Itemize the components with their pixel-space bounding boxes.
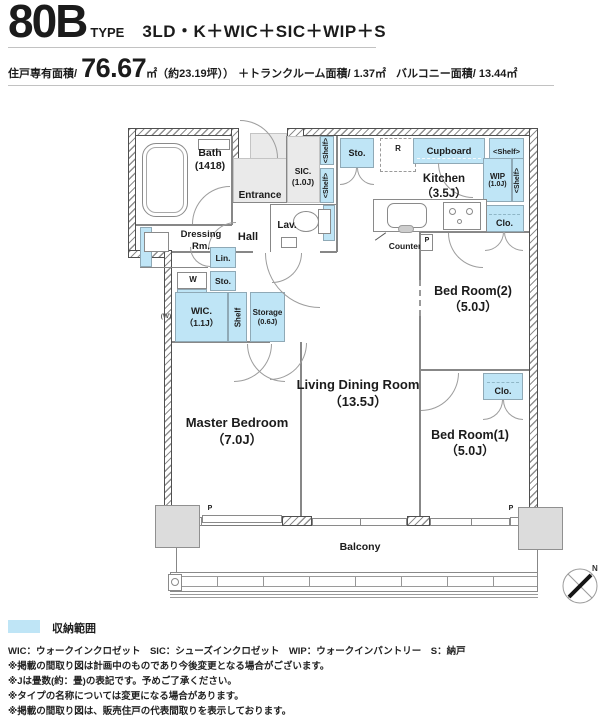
washer-label: W xyxy=(189,275,197,285)
wic-size: （1.1J） xyxy=(185,317,219,329)
bed1-window xyxy=(430,518,510,526)
stove-burner-icon xyxy=(449,208,456,215)
master-window xyxy=(202,515,282,523)
wic-shelf-strip: Shelf xyxy=(228,292,247,342)
sic-shelf-strip-2: <Shelf> xyxy=(320,168,334,203)
stove xyxy=(443,202,481,230)
bed1-closet: Clo. xyxy=(483,373,523,400)
lav-sink xyxy=(281,237,297,248)
stove-burner-icon xyxy=(457,219,462,224)
kitchen-sto-door-arc-right xyxy=(357,168,374,185)
room-label-entrance: Entrance xyxy=(239,190,282,203)
storage-room-label: Storage xyxy=(253,308,283,317)
cupboard: Cupboard xyxy=(413,138,485,164)
floor-plan-page: 80B TYPE 3LD・K＋WIC＋SIC＋WIP＋S 住戸専有面積/ 76.… xyxy=(0,0,607,720)
wall-bed2-bed1 xyxy=(419,369,529,371)
wall-master-ldr xyxy=(300,342,302,518)
room-label-living: Living Dining Room （13.5J） xyxy=(297,377,420,410)
wall-hall-bottom-right xyxy=(320,251,337,253)
legend-storage-swatch xyxy=(8,620,40,633)
wall-right xyxy=(529,128,538,508)
storage-label: Sto. xyxy=(215,276,231,286)
footer-note-3: ※タイプの名称については変更になる場合があります。 xyxy=(8,690,244,705)
room-label-sic: SIC. (1.0J) xyxy=(292,166,314,188)
dressing-vanity xyxy=(144,232,169,252)
bed1-door-arc xyxy=(421,373,459,411)
closet-label: Clo. xyxy=(496,218,513,228)
wall-hall-lav xyxy=(270,204,271,252)
wall-entrance-sic xyxy=(286,136,287,203)
hall-storage: Sto. xyxy=(210,271,236,291)
wall-corridor xyxy=(336,136,338,252)
bathtub xyxy=(142,143,188,217)
shelf-label: <Shelf> xyxy=(324,138,331,163)
refrigerator-label: R xyxy=(381,144,415,153)
washer-paren-label: (W) xyxy=(161,313,171,321)
wic-label: WIC. xyxy=(191,306,212,317)
balcony-side-right xyxy=(537,550,538,573)
bed2-door-arc xyxy=(448,233,483,268)
cupboard-label: Cupboard xyxy=(427,146,472,157)
kitchen-clo-door-arc-right xyxy=(504,232,523,251)
living-window xyxy=(312,518,407,526)
wip-label: WIP xyxy=(490,172,505,181)
wall-left-lower xyxy=(164,250,172,508)
bath-door-arc xyxy=(192,186,230,224)
footer-note-2: ※Jは畳数(約：畳)の表記です。予めご了承ください。 xyxy=(8,675,237,690)
walk-in-pantry: WIP (1.0J) xyxy=(483,158,512,202)
floor-plan: <Shelf> <Shelf> Sto. R Cupboard <Shelf> … xyxy=(0,0,607,620)
room-label-dressing: Dressing Rm. xyxy=(181,229,222,253)
balcony-side-left xyxy=(176,548,177,573)
wip-shelf-strip: <Shelf> xyxy=(512,158,524,202)
room-label-bath: Bath (1418) xyxy=(195,147,225,174)
north-label: N xyxy=(592,564,598,573)
bed1-clo-door-arc-right xyxy=(503,400,523,420)
linen-label: Lin. xyxy=(215,253,230,263)
sic-shelf-strip-1: <Shelf> xyxy=(320,136,334,165)
footer-note-4: ※掲載の間取り図は、販売住戸の代表間取りを表示しております。 xyxy=(8,705,291,720)
wall-ldr-bed2-b xyxy=(419,316,421,370)
toilet-bowl xyxy=(293,211,319,232)
wall-top-left xyxy=(128,128,238,136)
washer-space: W xyxy=(177,272,207,289)
bed1-clo-door-arc-left xyxy=(483,400,503,420)
footer-note-1: ※掲載の間取り図は計画中のものであり今後変更となる場合がございます。 xyxy=(8,660,329,675)
footer-abbreviations: WIC：ウォークインクロゼット SIC：シューズインクロゼット WIP：ウォーク… xyxy=(8,645,466,660)
kitchen-clo-door-arc-left xyxy=(485,232,504,251)
entrance-door-arc xyxy=(240,120,278,158)
wall-bath-entrance xyxy=(231,136,233,225)
window-pier-2 xyxy=(407,516,430,526)
storage-room-size: (0.6J) xyxy=(258,317,278,326)
room-label-bed2: Bed Room(2) （5.0J） xyxy=(434,283,512,315)
kitchen-closet: Clo. xyxy=(485,205,524,232)
wall-ldr-bed2-dashed xyxy=(419,280,421,316)
legend-label: 収納範囲 xyxy=(52,620,96,636)
pipe-label-bottom-left: P xyxy=(208,505,213,514)
wall-left-upper xyxy=(128,128,136,258)
counter-label: Counter xyxy=(389,241,422,252)
kitchen-storage: Sto. xyxy=(340,138,374,168)
pillar-left xyxy=(155,505,200,548)
balcony-railing xyxy=(170,572,538,592)
room-label-bed1: Bed Room(1) （5.0J） xyxy=(431,427,509,459)
wall-dressing-bottom xyxy=(140,267,208,268)
window-pier-1 xyxy=(282,516,312,526)
shelf-label: <Shelf> xyxy=(493,147,520,156)
room-label-lav: Lav. xyxy=(277,220,296,233)
shelf-label: Shelf xyxy=(233,307,242,327)
wip-size: (1.0J) xyxy=(488,181,506,188)
toilet-tank xyxy=(318,209,331,234)
walk-in-closet: WIC. （1.1J） xyxy=(175,292,228,342)
pipe-label-bottom-right: P xyxy=(509,505,514,514)
refrigerator-space: R xyxy=(380,138,416,172)
balcony-drain xyxy=(168,574,182,591)
faucet xyxy=(398,225,414,233)
closet-label: Clo. xyxy=(495,386,512,396)
room-label-hall: Hall xyxy=(238,230,258,244)
shelf-label: <Shelf> xyxy=(515,167,522,192)
pipe-space-kitchen: P xyxy=(420,234,433,251)
room-label-kitchen: Kitchen （3.5J） xyxy=(421,172,466,201)
kitchen-sto-door-arc-left xyxy=(340,168,357,185)
shelf-label: <Shelf> xyxy=(324,173,331,198)
wall-bath-bottom xyxy=(136,224,232,226)
wall-top-right xyxy=(303,128,538,136)
pillar-right xyxy=(518,507,563,550)
counter-leader-line xyxy=(375,232,386,240)
room-label-balcony: Balcony xyxy=(340,541,381,554)
pipe-label: P xyxy=(425,237,430,246)
stove-burner-icon xyxy=(466,208,473,215)
compass-north-icon: N xyxy=(556,558,604,610)
storage-label: Sto. xyxy=(349,148,366,158)
storage-room: Storage (0.6J) xyxy=(250,292,285,342)
balcony-base-line xyxy=(170,594,538,598)
room-label-master: Master Bedroom （7.0J） xyxy=(186,415,289,448)
